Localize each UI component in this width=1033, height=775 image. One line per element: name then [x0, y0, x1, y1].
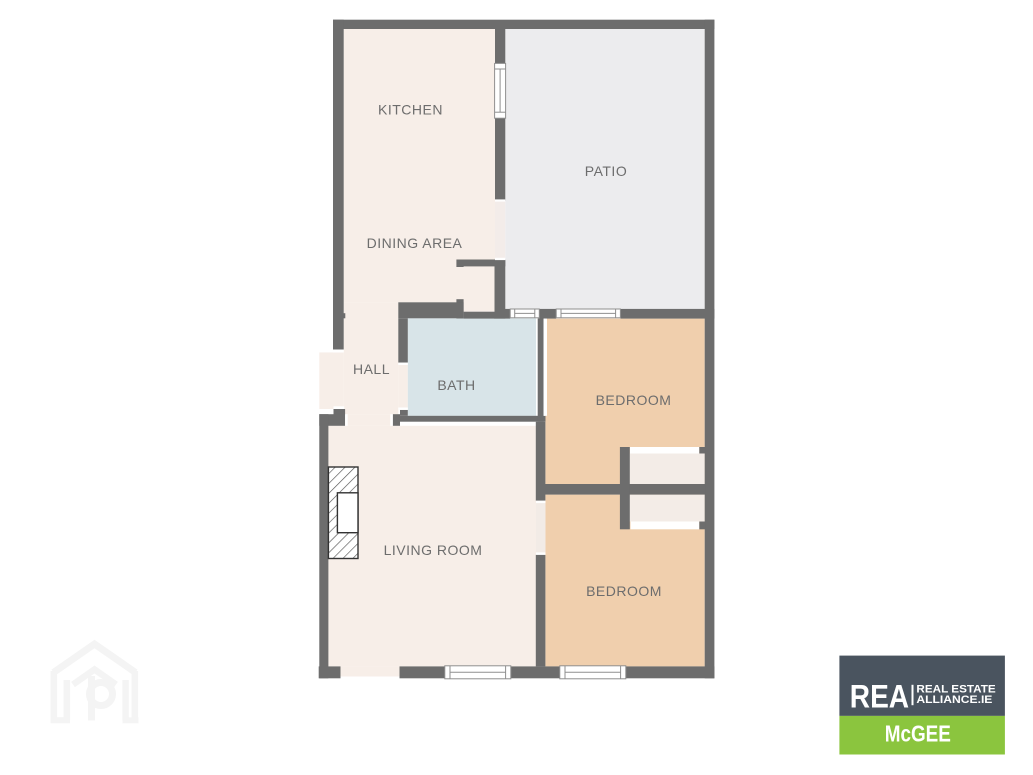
svg-text:BEDROOM: BEDROOM	[596, 392, 672, 408]
svg-text:BATH: BATH	[437, 377, 475, 393]
svg-text:McGEE: McGEE	[885, 721, 951, 747]
svg-text:ALLIANCE.IE: ALLIANCE.IE	[916, 694, 992, 706]
svg-text:BEDROOM: BEDROOM	[586, 583, 662, 599]
svg-text:REA: REA	[850, 679, 909, 715]
svg-text:KITCHEN: KITCHEN	[378, 101, 443, 117]
svg-text:PATIO: PATIO	[585, 163, 627, 179]
svg-text:HALL: HALL	[353, 361, 390, 377]
svg-text:DINING AREA: DINING AREA	[367, 235, 463, 251]
svg-text:LIVING ROOM: LIVING ROOM	[384, 542, 483, 558]
